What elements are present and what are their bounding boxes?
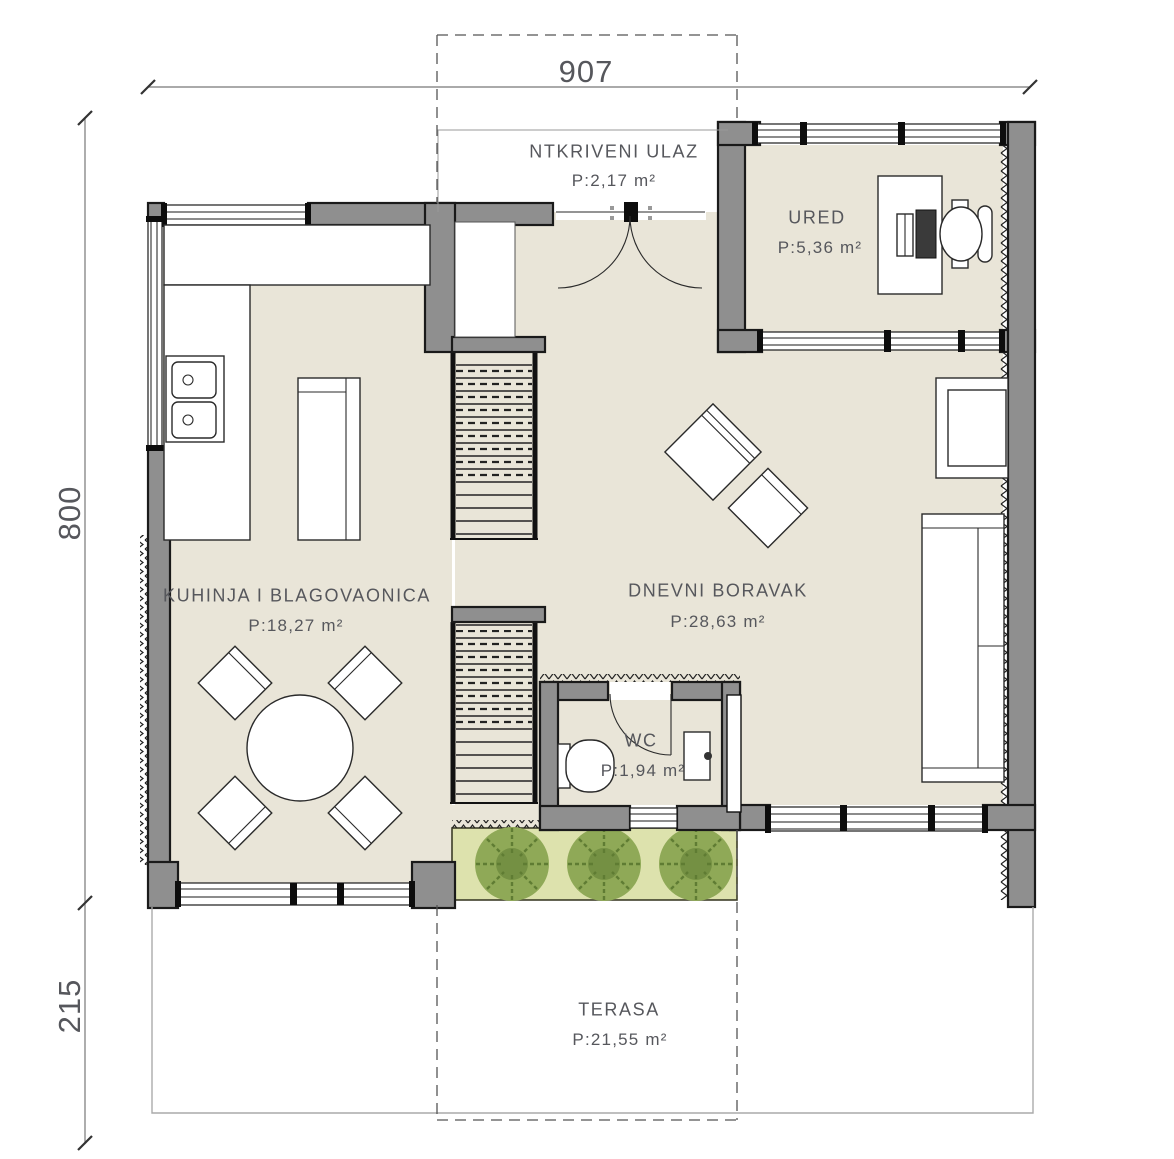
room-label-terrace-area: P:21,55 m²: [572, 1030, 667, 1050]
staircase-lower: [450, 622, 538, 804]
room-label-kitchen-area: P:18,27 m²: [248, 616, 343, 636]
room-label-wc-name: WC: [624, 731, 657, 752]
room-label-terrace-name: TERASA: [578, 1000, 660, 1021]
armchair-right: [936, 378, 1008, 478]
monitor: [916, 210, 936, 258]
dimension-top: 907: [559, 54, 614, 90]
sofa: [922, 514, 1004, 782]
room-label-office-area: P:5,36 m²: [778, 238, 863, 258]
room-label-entrance-area: P:2,17 m²: [572, 171, 657, 191]
floor-plan-canvas: 907 800 215 NTKRIVENI ULAZ P:2,17 m² URE…: [0, 0, 1174, 1159]
room-label-entrance-name: NTKRIVENI ULAZ: [529, 142, 698, 163]
wc-sink: [684, 732, 712, 780]
terrace-planter: [452, 820, 737, 901]
kitchen-sink: [166, 356, 224, 442]
room-label-living-area: P:28,63 m²: [670, 612, 765, 632]
bush-icon: [567, 827, 641, 901]
room-label-office-name: URED: [788, 208, 845, 229]
dining-table: [247, 695, 353, 801]
dimension-left-lower: 215: [52, 979, 88, 1034]
staircase-upper: [450, 350, 538, 540]
bush-icon: [659, 827, 733, 901]
bush-icon: [475, 827, 549, 901]
room-label-living-name: DNEVNI BORAVAK: [628, 581, 808, 602]
kitchen-island: [298, 378, 360, 540]
hall-closet: [455, 222, 515, 337]
room-label-kitchen-name: KUHINJA I BLAGOVAONICA: [163, 586, 431, 607]
dimension-left: 800: [52, 486, 88, 541]
room-label-wc-area: P:1,94 m²: [601, 761, 686, 781]
